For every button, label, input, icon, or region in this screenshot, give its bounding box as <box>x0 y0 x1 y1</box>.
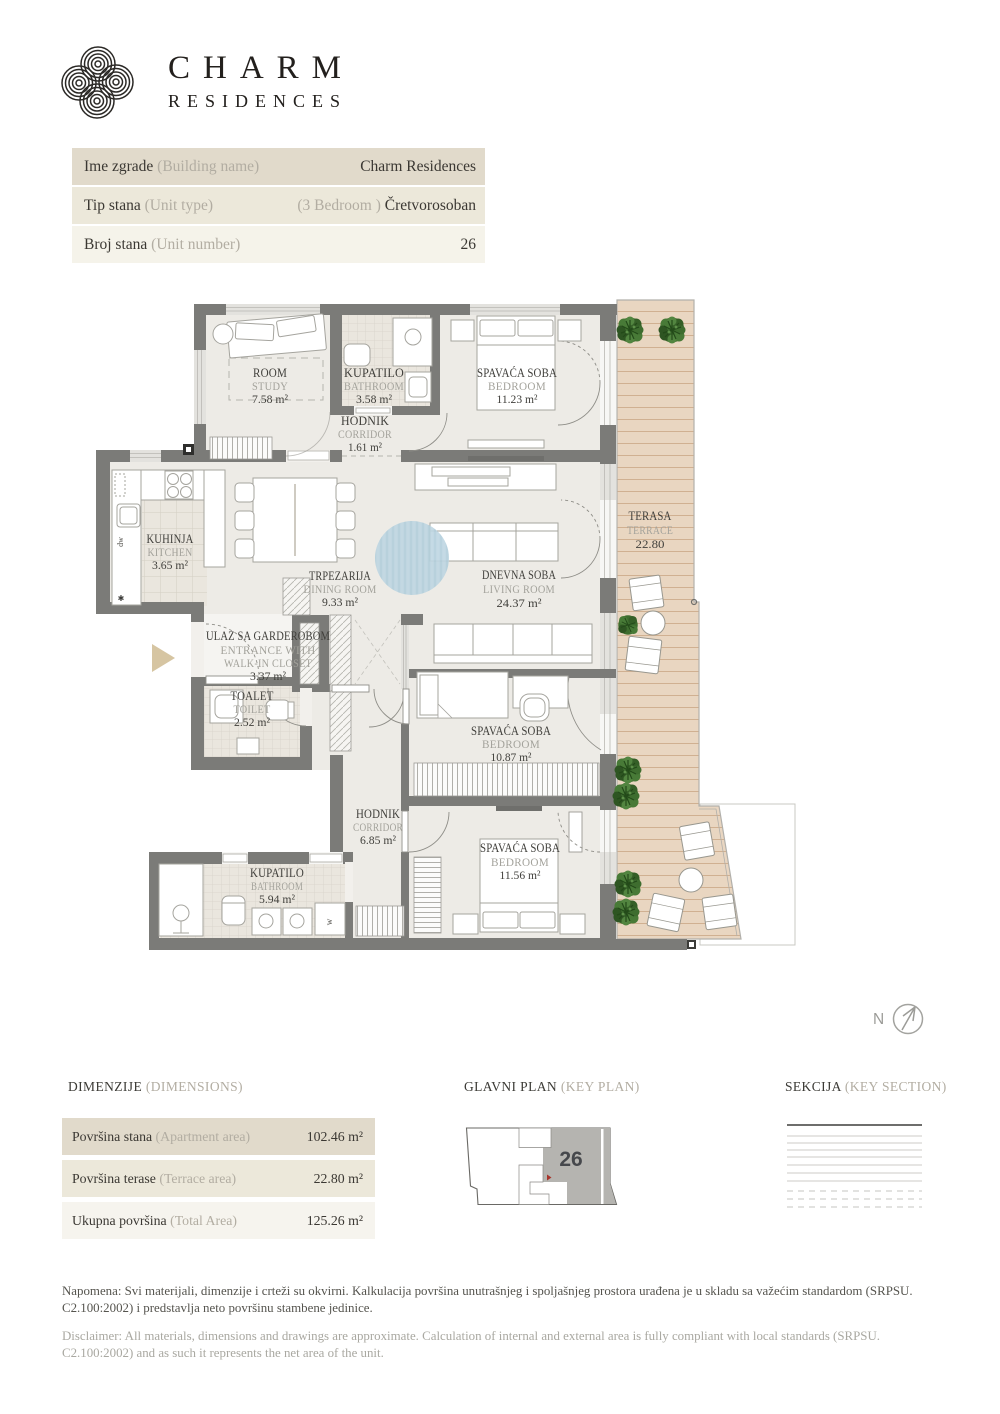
svg-text:11.23 m²: 11.23 m² <box>497 392 538 406</box>
svg-text:3.58 m²: 3.58 m² <box>356 392 392 406</box>
svg-text:SPAVAĆA SOBA: SPAVAĆA SOBA <box>477 366 557 380</box>
svg-text:N: N <box>873 1011 884 1028</box>
svg-text:6.85 m²: 6.85 m² <box>360 833 396 847</box>
svg-text:BEDROOM: BEDROOM <box>482 737 540 751</box>
svg-text:WALK-IN CLOSET: WALK-IN CLOSET <box>224 656 312 670</box>
svg-text:CORRIDOR: CORRIDOR <box>353 820 403 834</box>
svg-text:CORRIDOR: CORRIDOR <box>338 427 392 441</box>
svg-text:3.37 m²: 3.37 m² <box>250 669 286 683</box>
svg-text:9.33 m²: 9.33 m² <box>322 595 358 609</box>
svg-text:22.80: 22.80 <box>636 537 665 551</box>
svg-text:STUDY: STUDY <box>252 379 288 393</box>
svg-text:TOILET: TOILET <box>234 702 271 716</box>
svg-text:11.56 m²: 11.56 m² <box>500 868 541 882</box>
svg-text:SPAVAĆA SOBA: SPAVAĆA SOBA <box>480 841 560 855</box>
svg-text:SPAVAĆA SOBA: SPAVAĆA SOBA <box>471 724 551 738</box>
svg-text:KITCHEN: KITCHEN <box>148 545 193 559</box>
svg-text:HODNIK: HODNIK <box>341 414 390 428</box>
svg-text:26: 26 <box>559 1148 582 1171</box>
svg-text:ENTRANCE WITH: ENTRANCE WITH <box>221 643 316 657</box>
svg-text:3.65 m²: 3.65 m² <box>152 558 188 572</box>
svg-text:LIVING ROOM: LIVING ROOM <box>483 582 555 596</box>
svg-text:KUHINJA: KUHINJA <box>147 532 194 546</box>
svg-text:ULAZ SA GARDEROBOM: ULAZ SA GARDEROBOM <box>206 629 330 643</box>
svg-text:DNEVNA SOBA: DNEVNA SOBA <box>482 568 556 582</box>
svg-text:5.94 m²: 5.94 m² <box>259 892 295 906</box>
svg-text:2.52 m²: 2.52 m² <box>234 715 270 729</box>
svg-text:BEDROOM: BEDROOM <box>488 379 546 393</box>
svg-text:KUPATILO: KUPATILO <box>250 866 304 880</box>
svg-text:dw: dw <box>116 537 125 547</box>
svg-text:TOALET: TOALET <box>231 689 274 703</box>
svg-text:BATHROOM: BATHROOM <box>251 879 303 893</box>
svg-text:TERASA: TERASA <box>629 509 672 523</box>
svg-text:ROOM: ROOM <box>253 366 287 380</box>
svg-text:✱: ✱ <box>118 594 125 603</box>
svg-text:TERRACE: TERRACE <box>627 523 673 537</box>
svg-text:DINING ROOM: DINING ROOM <box>304 582 377 596</box>
svg-text:24.37 m²: 24.37 m² <box>497 596 542 610</box>
svg-text:BEDROOM: BEDROOM <box>491 855 549 869</box>
svg-text:TRPEZARIJA: TRPEZARIJA <box>309 569 371 583</box>
svg-text:7.58 m²: 7.58 m² <box>252 392 288 406</box>
svg-text:1.61 m²: 1.61 m² <box>348 440 382 454</box>
svg-text:10.87 m²: 10.87 m² <box>491 750 532 764</box>
svg-text:HODNIK: HODNIK <box>356 807 400 821</box>
svg-text:w: w <box>324 918 334 925</box>
svg-text:BATHROOM: BATHROOM <box>344 379 404 393</box>
svg-text:KUPATILO: KUPATILO <box>344 366 404 380</box>
